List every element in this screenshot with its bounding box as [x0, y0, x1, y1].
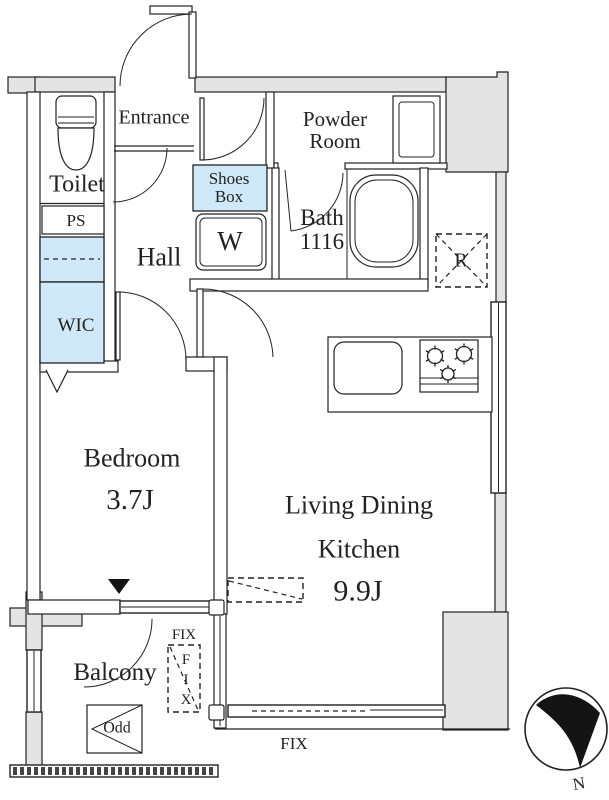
label-wic: WIC: [58, 316, 95, 336]
powder-sink: [393, 96, 440, 163]
wall-bedroom-ldk: [214, 357, 227, 614]
label-washer: W: [217, 227, 242, 255]
wall-balcony-left-lower: [26, 712, 42, 768]
label-powder-room: Powder Room: [303, 108, 367, 152]
label-ldk-line2: Kitchen: [318, 535, 400, 562]
wall-bath-left: [272, 168, 279, 283]
label-powder-line2: Room: [303, 130, 367, 152]
label-bedroom: Bedroom: [84, 444, 181, 471]
label-shoes-box-line2: Box: [209, 188, 250, 206]
label-bath-line1: Bath: [300, 206, 344, 230]
wic-door-mark: [46, 370, 68, 392]
wall-right-lower: [495, 493, 506, 612]
wall-bath-right: [420, 168, 428, 287]
label-shoes-box: Shoes Box: [209, 170, 250, 206]
wall-left-outer: [27, 92, 40, 600]
wall-bottom-right-block: [443, 612, 508, 730]
ldk-door-leaf: [197, 289, 203, 357]
floorplan-page: Entrance Toilet PS WIC Hall Shoes Box W …: [0, 0, 609, 800]
label-toilet: Toilet: [49, 172, 105, 197]
wall-right-upper: [496, 172, 506, 302]
label-bedroom-size: 3.7J: [106, 485, 154, 515]
entrance-door-arc: [120, 14, 192, 86]
label-ldk-line1: Living Dining: [285, 491, 433, 518]
wall-post-1: [209, 600, 224, 615]
balcony-entry-triangle: [108, 579, 130, 594]
label-entrance: Entrance: [118, 108, 189, 129]
wall-top-left: [35, 77, 115, 92]
toilet-bowl: [58, 128, 94, 170]
label-powder-line1: Powder: [303, 108, 367, 130]
label-ldk-size: 9.9J: [333, 575, 382, 607]
wall-bedroom-bottom: [28, 600, 120, 614]
wall-powder-left: [266, 92, 274, 168]
powder-door-leaf: [200, 98, 204, 160]
wall-powder-bottom-b: [345, 163, 447, 169]
label-refrigerator: R: [454, 251, 467, 272]
label-hall: Hall: [137, 243, 182, 270]
wall-top-right: [195, 77, 446, 92]
compass: [525, 688, 607, 770]
label-fix-side: FIX: [172, 628, 196, 644]
wall-top-right-block: [446, 72, 508, 172]
bedroom-door-arc: [118, 292, 186, 360]
label-shoes-box-line1: Shoes: [209, 170, 250, 188]
bath-door-leaf: [285, 170, 291, 231]
label-odd: Odd: [103, 721, 131, 738]
wall-toilet-wic-right: [104, 92, 115, 363]
bedroom-door-leaf: [116, 292, 120, 360]
label-bath: Bath 1116: [300, 206, 344, 254]
label-bath-line2: 1116: [300, 230, 344, 254]
entrance-door-frame: [150, 6, 192, 14]
label-fix-letter-f: F: [182, 653, 190, 669]
label-fix-bottom: FIX: [280, 735, 307, 753]
label-fix-letter-x: X: [181, 693, 192, 709]
kitchen-sink: [334, 342, 402, 394]
wall-bath-bottom: [190, 279, 428, 291]
toilet-door-arc: [113, 148, 167, 202]
label-balcony: Balcony: [73, 660, 156, 686]
ldk-dashed-diagonal: [229, 581, 302, 599]
powder-door-arc: [202, 98, 264, 160]
label-fix-letter-i: I: [184, 673, 189, 689]
bathtub-outer: [350, 175, 418, 267]
wall-post-2: [209, 705, 224, 720]
label-ps: PS: [67, 212, 86, 230]
ldk-door-arc: [203, 289, 273, 357]
entrance-door-leaf: [189, 12, 196, 78]
